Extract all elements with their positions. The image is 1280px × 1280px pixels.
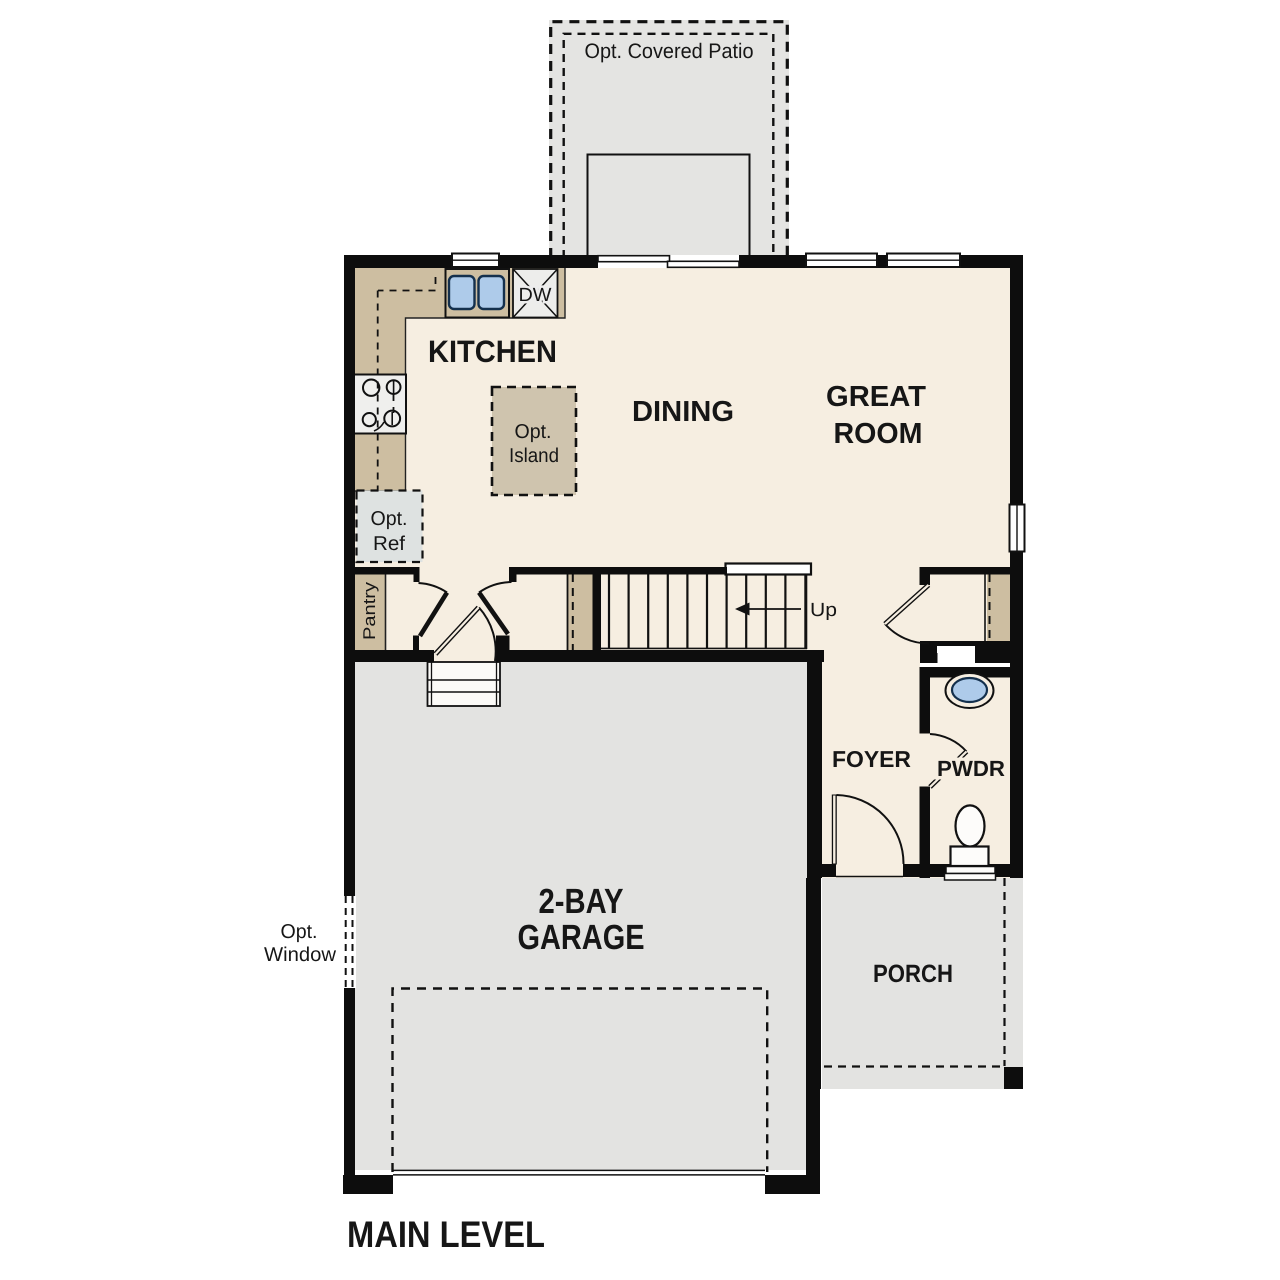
svg-text:DW: DW	[519, 285, 552, 306]
svg-text:Opt.: Opt.	[371, 508, 408, 530]
svg-text:MAIN LEVEL: MAIN LEVEL	[347, 1214, 545, 1255]
svg-text:Window: Window	[264, 944, 337, 966]
svg-text:Ref: Ref	[373, 533, 405, 555]
svg-text:Island: Island	[509, 445, 559, 467]
svg-text:2-BAY: 2-BAY	[539, 882, 624, 921]
svg-text:Opt.: Opt.	[281, 921, 318, 943]
svg-text:KITCHEN: KITCHEN	[428, 334, 557, 369]
svg-text:PORCH: PORCH	[873, 960, 953, 988]
svg-text:ROOM: ROOM	[834, 418, 923, 450]
svg-text:Pantry: Pantry	[360, 581, 379, 640]
svg-text:FOYER: FOYER	[832, 746, 911, 772]
svg-text:PWDR: PWDR	[937, 756, 1005, 781]
svg-text:GARAGE: GARAGE	[518, 918, 645, 957]
svg-text:Up: Up	[810, 600, 837, 621]
svg-text:DINING: DINING	[632, 396, 734, 428]
svg-text:GREAT: GREAT	[826, 381, 926, 413]
svg-text:Opt.: Opt.	[515, 421, 552, 443]
svg-text:Opt. Covered Patio: Opt. Covered Patio	[585, 40, 754, 63]
